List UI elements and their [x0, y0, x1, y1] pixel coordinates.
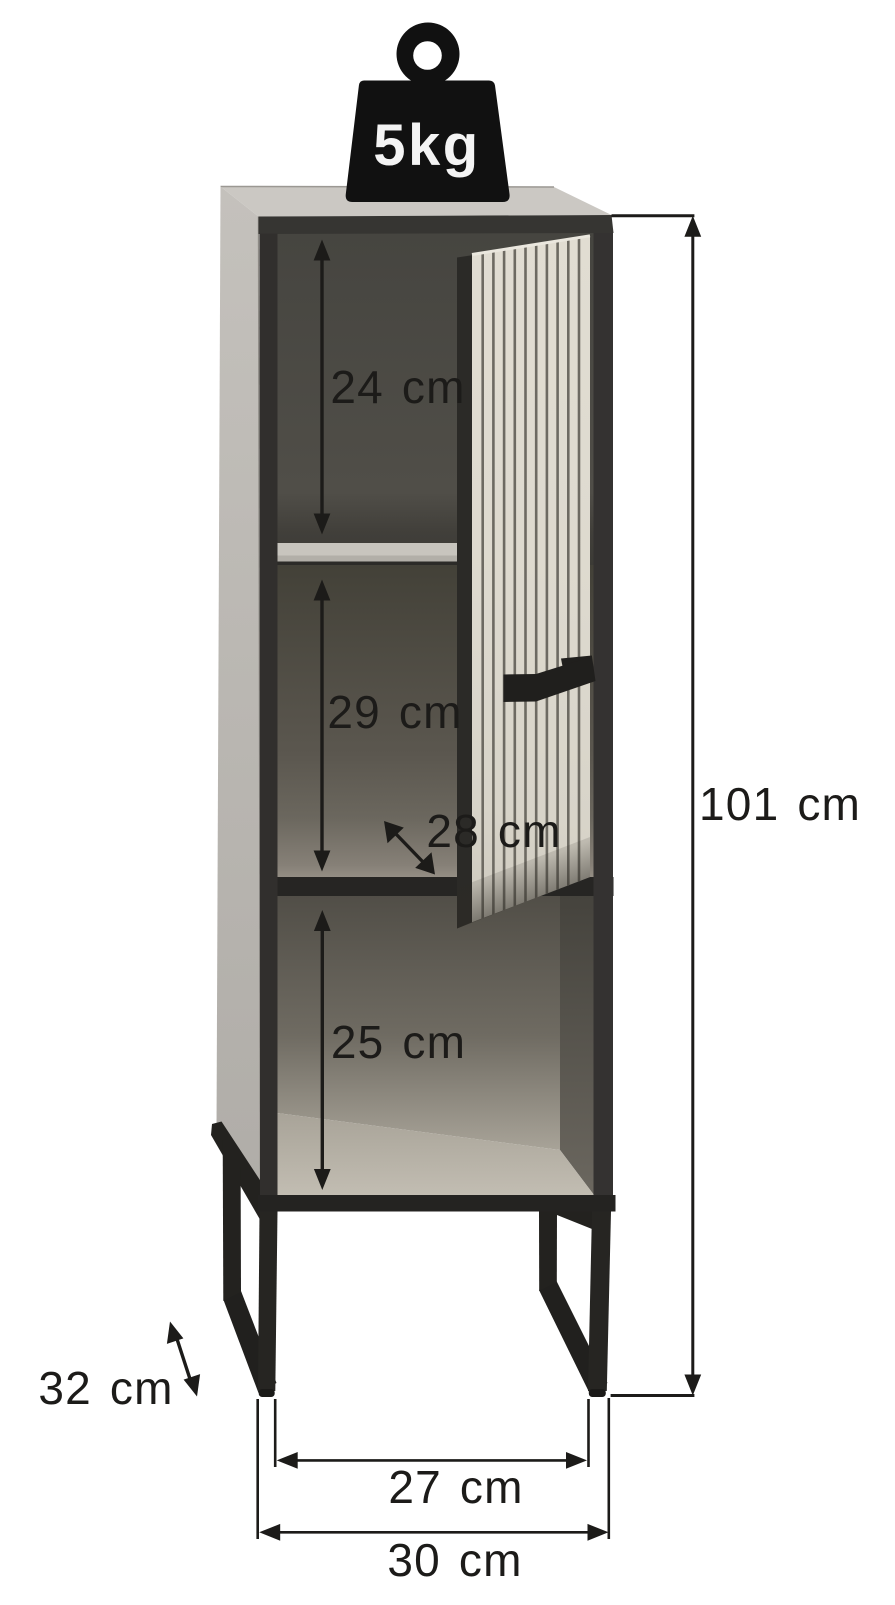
svg-text:28 cm: 28 cm [426, 805, 561, 857]
svg-text:30 cm: 30 cm [387, 1534, 522, 1586]
svg-text:24 cm: 24 cm [330, 361, 465, 413]
svg-text:5kg: 5kg [373, 113, 480, 178]
svg-text:101 cm: 101 cm [699, 778, 861, 830]
svg-text:27 cm: 27 cm [388, 1461, 523, 1513]
svg-text:29 cm: 29 cm [327, 686, 462, 738]
svg-text:25 cm: 25 cm [331, 1016, 466, 1068]
svg-text:32 cm: 32 cm [38, 1362, 173, 1414]
